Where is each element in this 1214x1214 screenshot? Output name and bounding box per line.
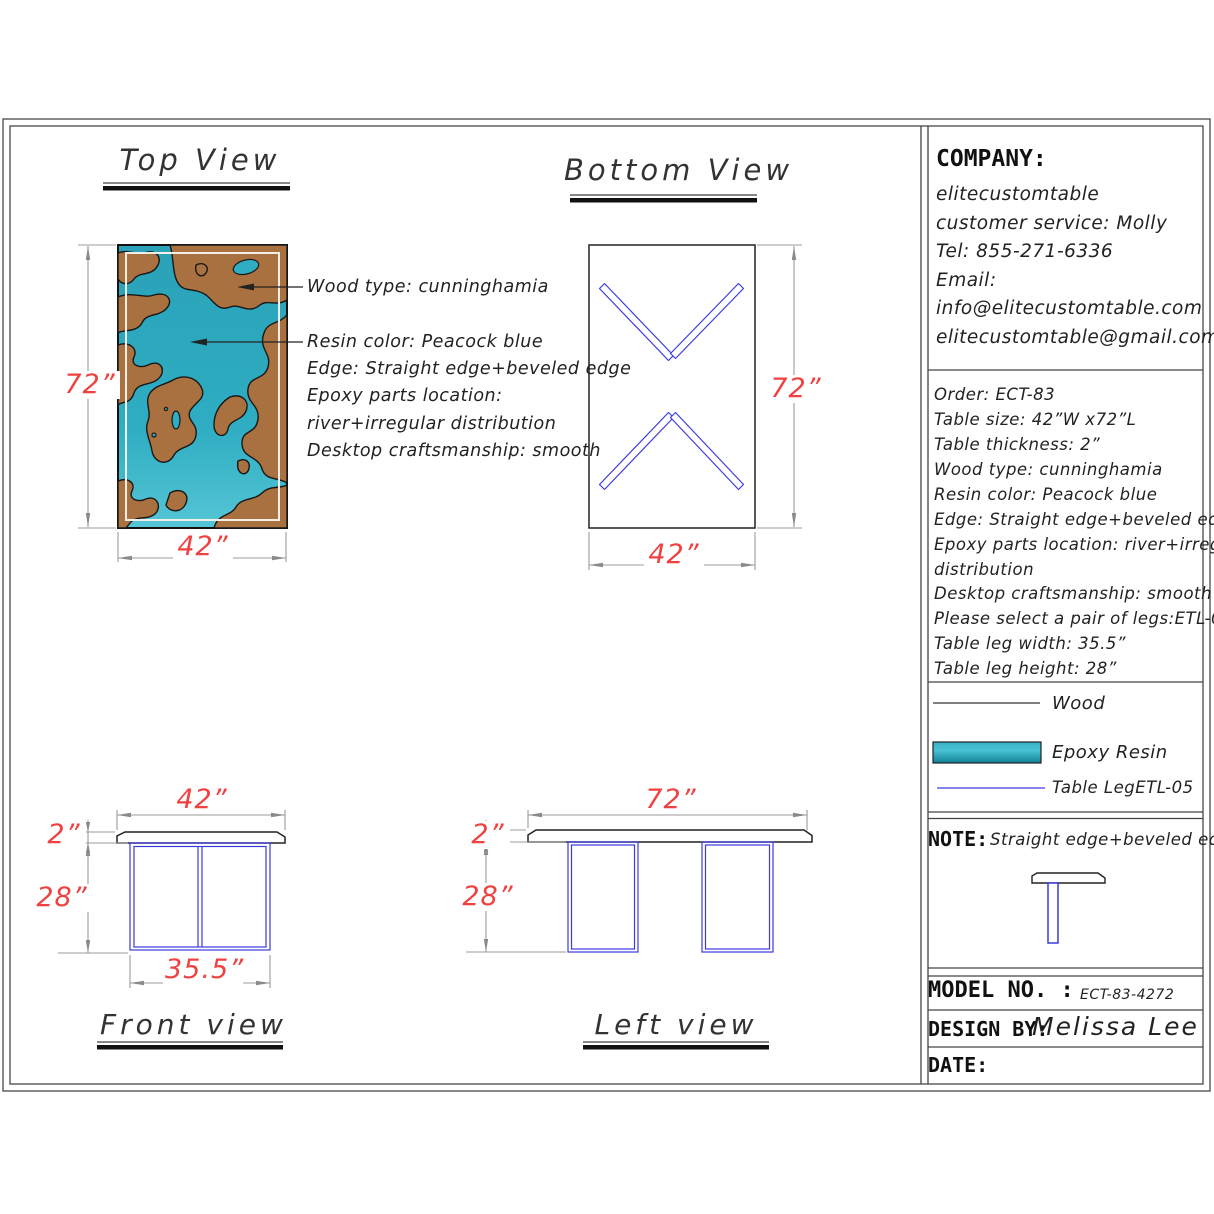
annotation-craftsmanship: Desktop craftsmanship: smooth — [307, 441, 601, 461]
epoxy-legend-swatch — [933, 742, 1041, 763]
company-label: COMPANY: — [936, 146, 1047, 172]
annotation-wood-type: Wood type: cunninghamia — [307, 277, 549, 297]
order-table-size: Table size: 42”W x72”L — [934, 410, 1136, 429]
dim-leftview-leg-height: 28” — [458, 883, 518, 911]
annotation-edge: Edge: Straight edge+beveled edge — [307, 359, 631, 379]
left-view-legs — [568, 842, 773, 952]
dim-frontview-thickness: 2” — [42, 821, 86, 849]
company-email-label: Email: — [936, 270, 997, 291]
company-email-1: info@elitecustomtable.com — [936, 298, 1202, 319]
legend-graphics — [933, 703, 1045, 788]
order-epoxy-location-2: distribution — [934, 560, 1034, 579]
legend-leg-label: Table LegETL-05 — [1052, 778, 1194, 797]
dim-frontview-width: 42” — [172, 786, 232, 814]
order-wood-type: Wood type: cunninghamia — [934, 460, 1163, 479]
dim-frontview-leg-height: 28” — [32, 884, 92, 912]
dim-bottomview-length: 72” — [766, 375, 826, 403]
legend-wood-label: Wood — [1052, 693, 1105, 714]
left-view-title: Left view — [586, 1008, 766, 1041]
order-resin-color: Resin color: Peacock blue — [934, 485, 1157, 504]
order-number: Order: ECT-83 — [934, 385, 1055, 404]
front-view-geometry — [117, 832, 285, 950]
order-thickness: Table thickness: 2” — [934, 435, 1100, 454]
legend-epoxy-label: Epoxy Resin — [1052, 742, 1168, 763]
order-leg-height: Table leg height: 28” — [934, 659, 1117, 678]
model-no-value: ECT-83-4272 — [1080, 987, 1174, 1003]
bottom-view-title: Bottom View — [564, 153, 764, 187]
left-view-geometry — [528, 830, 812, 952]
design-by-label: DESIGN BY: — [928, 1017, 1048, 1041]
order-edge: Edge: Straight edge+beveled edge — [934, 510, 1214, 529]
company-service: customer service: Molly — [936, 213, 1167, 234]
dim-topview-width: 42” — [173, 533, 233, 561]
bottom-view-outline — [589, 245, 755, 528]
annotation-epoxy-location: Epoxy parts location: — [307, 386, 503, 406]
front-view-title: Front view — [100, 1008, 280, 1041]
dim-topview-length: 72” — [60, 371, 120, 399]
dim-frontview-leg-width: 35.5” — [163, 956, 243, 984]
company-email-2: elitecustomtable@gmail.com — [936, 327, 1214, 348]
order-legs: Please select a pair of legs:ETL-05 — [934, 609, 1214, 628]
dim-leftview-length: 72” — [641, 786, 701, 814]
company-name: elitecustomtable — [936, 184, 1099, 205]
order-epoxy-location: Epoxy parts location: river+irregular — [934, 535, 1214, 554]
front-view-legs — [130, 843, 270, 950]
note-label: NOTE: — [928, 827, 988, 851]
drawing-sheet: Top View Bottom View Front view Left vie… — [0, 0, 1214, 1214]
dim-leftview-thickness: 2” — [466, 821, 510, 849]
annotation-resin-color: Resin color: Peacock blue — [307, 332, 543, 352]
order-craftsmanship: Desktop craftsmanship: smooth — [934, 584, 1212, 603]
design-by-value: Melissa Lee — [1032, 1012, 1199, 1041]
annotation-river-distribution: river+irregular distribution — [307, 414, 556, 434]
company-tel: Tel: 855-271-6336 — [936, 241, 1113, 262]
model-no-label: MODEL NO. : — [928, 978, 1074, 1003]
top-view-title: Top View — [110, 143, 290, 177]
dim-bottomview-width: 42” — [644, 541, 704, 569]
note-text: Straight edge+beveled edge — [990, 830, 1214, 849]
note-edge-diagram — [1032, 873, 1105, 943]
order-leg-width: Table leg width: 35.5” — [934, 634, 1126, 653]
date-label: DATE: — [928, 1053, 988, 1077]
